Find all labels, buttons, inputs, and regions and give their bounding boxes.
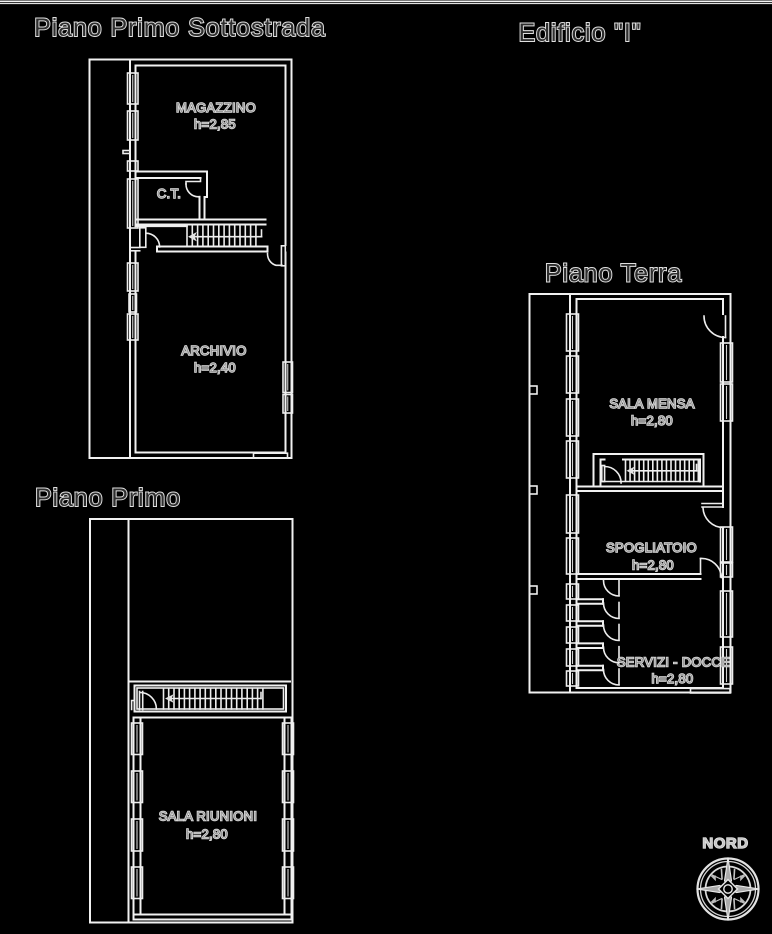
svg-text:SPOGLIATOIO: SPOGLIATOIO: [606, 540, 697, 555]
svg-text:Piano Primo: Piano Primo: [35, 484, 181, 512]
svg-text:h=2,80: h=2,80: [631, 413, 673, 428]
svg-text:SALA MENSA: SALA MENSA: [609, 396, 694, 411]
svg-text:h=2,85: h=2,85: [194, 117, 236, 132]
svg-text:h=2,80: h=2,80: [652, 671, 694, 686]
svg-text:Piano Primo Sottostrada: Piano Primo Sottostrada: [34, 14, 326, 42]
svg-text:h=2,80: h=2,80: [186, 827, 228, 842]
svg-text:h=2,40: h=2,40: [194, 360, 236, 375]
svg-text:Piano Terra: Piano Terra: [545, 260, 682, 288]
svg-text:h=2,80: h=2,80: [632, 558, 674, 573]
svg-text:SERVIZI - DOCCE: SERVIZI - DOCCE: [617, 655, 730, 670]
svg-text:C.T.: C.T.: [157, 186, 181, 201]
svg-text:SALA RIUNIONI: SALA RIUNIONI: [159, 809, 258, 824]
svg-text:MAGAZZINO: MAGAZZINO: [176, 100, 256, 115]
svg-text:NORD: NORD: [702, 835, 748, 852]
svg-text:ARCHIVIO: ARCHIVIO: [181, 343, 246, 358]
svg-text:Edificio "I": Edificio "I": [518, 19, 641, 47]
